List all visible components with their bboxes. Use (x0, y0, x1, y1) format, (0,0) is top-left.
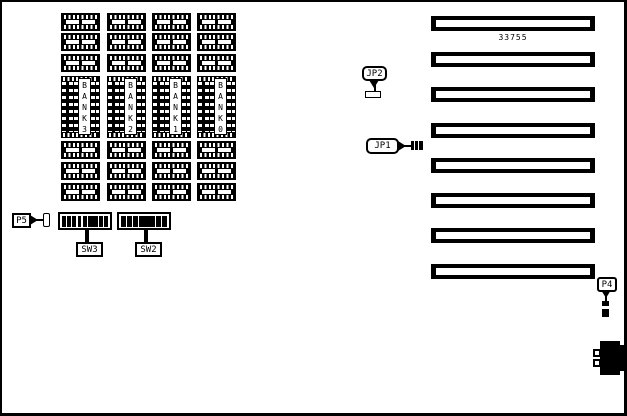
chip-body (202, 148, 231, 152)
bank-label: B A N K 0 (214, 78, 227, 135)
chip-body (112, 61, 141, 65)
chip-pins (155, 66, 188, 70)
socket-pins (182, 82, 186, 132)
dram-chip (61, 54, 100, 72)
chip-pins (200, 185, 233, 189)
chip-body (157, 169, 186, 173)
chip-pins (110, 174, 143, 178)
chip-body (157, 40, 186, 44)
keyboard-connector-pin-bottom (593, 359, 601, 367)
bank-label: B A N K 3 (78, 78, 91, 135)
jp2-callout: JP2 (362, 66, 387, 81)
chip-body (112, 148, 141, 152)
bank-label: B A N K 1 (169, 78, 182, 135)
chip-pins (155, 56, 188, 60)
chip-body (66, 61, 95, 65)
chip-pins (155, 174, 188, 178)
switch-segment (67, 216, 71, 227)
chip-pins (155, 195, 188, 199)
switch-segment (127, 216, 132, 227)
dram-chip (61, 162, 100, 180)
chip-pins (64, 45, 97, 49)
socket-pins (198, 82, 202, 132)
chip-pins (110, 195, 143, 199)
chip-pins (110, 164, 143, 168)
chip-pins (200, 56, 233, 60)
chip-pins (64, 15, 97, 19)
slot-groove (436, 127, 590, 134)
socket-pins (69, 82, 73, 132)
chip-pins (155, 35, 188, 39)
socket-pins (205, 82, 209, 132)
chip-pins (64, 56, 97, 60)
sw3-dip-switch (58, 212, 112, 230)
chip-body (112, 20, 141, 24)
chip-pins (110, 66, 143, 70)
expansion-slot (431, 16, 595, 31)
bank-socket: B A N K 3 (61, 76, 100, 138)
dram-chip (197, 141, 236, 159)
slot-groove (436, 232, 590, 239)
expansion-slot (431, 87, 595, 102)
dram-chip (197, 183, 236, 201)
expansion-slot (431, 52, 595, 67)
switch-segment (78, 216, 82, 227)
chip-pins (155, 15, 188, 19)
slot-groove (436, 20, 590, 27)
chip-body (112, 169, 141, 173)
expansion-slot (431, 264, 595, 279)
dram-chip (197, 54, 236, 72)
chip-pins (64, 185, 97, 189)
chip-pins (64, 164, 97, 168)
chip-pins (155, 25, 188, 29)
sw3-callout: SW3 (76, 242, 103, 257)
chip-pins (110, 15, 143, 19)
socket-pins (160, 82, 164, 132)
sw2-dip-switch (117, 212, 171, 230)
expansion-slot (431, 158, 595, 173)
switch-segment (62, 216, 66, 227)
p4-callout: P4 (597, 277, 617, 292)
chip-pins (200, 45, 233, 49)
chip-pins (155, 45, 188, 49)
chip-pins (200, 195, 233, 199)
chip-pins (200, 143, 233, 147)
socket-pins (153, 82, 157, 132)
slot-groove (436, 162, 590, 169)
switch-segment (88, 216, 97, 227)
dram-chip (107, 13, 146, 31)
chip-body (202, 169, 231, 173)
expansion-slot (431, 123, 595, 138)
chip-pins (64, 25, 97, 29)
chip-pins (110, 56, 143, 60)
slot-groove (436, 197, 590, 204)
chip-body (66, 20, 95, 24)
keyboard-connector (600, 341, 620, 375)
chip-pins (200, 164, 233, 168)
socket-pins (115, 82, 119, 132)
chip-pins (64, 195, 97, 199)
dram-chip (107, 183, 146, 201)
switch-segment (104, 216, 108, 227)
chip-pins (200, 35, 233, 39)
sw3-pointer-line (85, 229, 89, 243)
socket-pins (108, 82, 112, 132)
switch-segment (99, 216, 103, 227)
dram-chip (107, 33, 146, 51)
dram-chip (152, 54, 191, 72)
socket-pins (91, 82, 95, 132)
chip-pins (110, 25, 143, 29)
keyboard-connector-pin-top (593, 349, 601, 357)
socket-pins (96, 82, 99, 132)
chip-pins (200, 25, 233, 29)
socket-pins (232, 82, 235, 132)
chip-pins (110, 35, 143, 39)
chip-body (157, 190, 186, 194)
switch-segment (133, 216, 138, 227)
p4-connector (602, 301, 609, 317)
chip-pins (64, 153, 97, 157)
chip-pins (110, 185, 143, 189)
sw2-pointer-line (144, 229, 148, 243)
p5-connector (43, 213, 50, 227)
chip-pins (200, 15, 233, 19)
dram-chip (107, 54, 146, 72)
expansion-slot (431, 228, 595, 243)
dram-chip (61, 141, 100, 159)
chip-pins (155, 143, 188, 147)
chip-pins (110, 45, 143, 49)
jp1-jumper (411, 141, 423, 150)
dram-chip (107, 162, 146, 180)
chip-pins (64, 35, 97, 39)
chip-pins (200, 153, 233, 157)
chip-body (112, 190, 141, 194)
chip-body (202, 40, 231, 44)
dram-chip (152, 33, 191, 51)
dram-chip (197, 162, 236, 180)
chip-body (66, 169, 95, 173)
chip-body (157, 61, 186, 65)
expansion-slot (431, 193, 595, 208)
switch-segment (156, 216, 161, 227)
chip-pins (155, 164, 188, 168)
chip-body (66, 190, 95, 194)
socket-pins (187, 82, 190, 132)
socket-pins (227, 82, 231, 132)
chip-body (202, 190, 231, 194)
switch-segment (139, 216, 155, 227)
sw2-callout: SW2 (135, 242, 162, 257)
chip-body (157, 148, 186, 152)
motherboard-diagram: 33755 JP2 JP1 P5 P4 SW3 SW2 B A N K 3B A… (0, 0, 627, 416)
dram-chip (61, 183, 100, 201)
chip-body (157, 20, 186, 24)
socket-pins (62, 82, 66, 132)
keyboard-connector-flange (619, 345, 627, 371)
chip-pins (64, 143, 97, 147)
slot-groove (436, 91, 590, 98)
bank-socket: B A N K 2 (107, 76, 146, 138)
jp2-jumper (365, 91, 381, 98)
dram-chip (152, 141, 191, 159)
chip-pins (200, 66, 233, 70)
jp1-callout: JP1 (366, 138, 399, 154)
switch-segment (83, 216, 87, 227)
socket-pins (137, 82, 141, 132)
switch-segment (162, 216, 167, 227)
slot-groove (436, 56, 590, 63)
dram-chip (107, 141, 146, 159)
p5-callout: P5 (12, 213, 31, 228)
dram-chip (152, 162, 191, 180)
dram-chip (197, 13, 236, 31)
chip-body (202, 61, 231, 65)
dram-chip (152, 183, 191, 201)
switch-segment (72, 216, 76, 227)
dram-chip (61, 33, 100, 51)
dram-chip (61, 13, 100, 31)
part-number-label: 33755 (431, 33, 595, 42)
dram-chip (152, 13, 191, 31)
bank-label: B A N K 2 (124, 78, 137, 135)
chip-pins (155, 153, 188, 157)
chip-body (112, 40, 141, 44)
chip-pins (64, 174, 97, 178)
dram-chip (197, 33, 236, 51)
chip-pins (64, 66, 97, 70)
bank-socket: B A N K 1 (152, 76, 191, 138)
chip-pins (110, 143, 143, 147)
chip-body (202, 20, 231, 24)
socket-pins (142, 82, 145, 132)
bank-socket: B A N K 0 (197, 76, 236, 138)
chip-pins (155, 185, 188, 189)
slot-groove (436, 268, 590, 275)
chip-pins (110, 153, 143, 157)
chip-body (66, 148, 95, 152)
chip-pins (200, 174, 233, 178)
switch-segment (121, 216, 126, 227)
chip-body (66, 40, 95, 44)
